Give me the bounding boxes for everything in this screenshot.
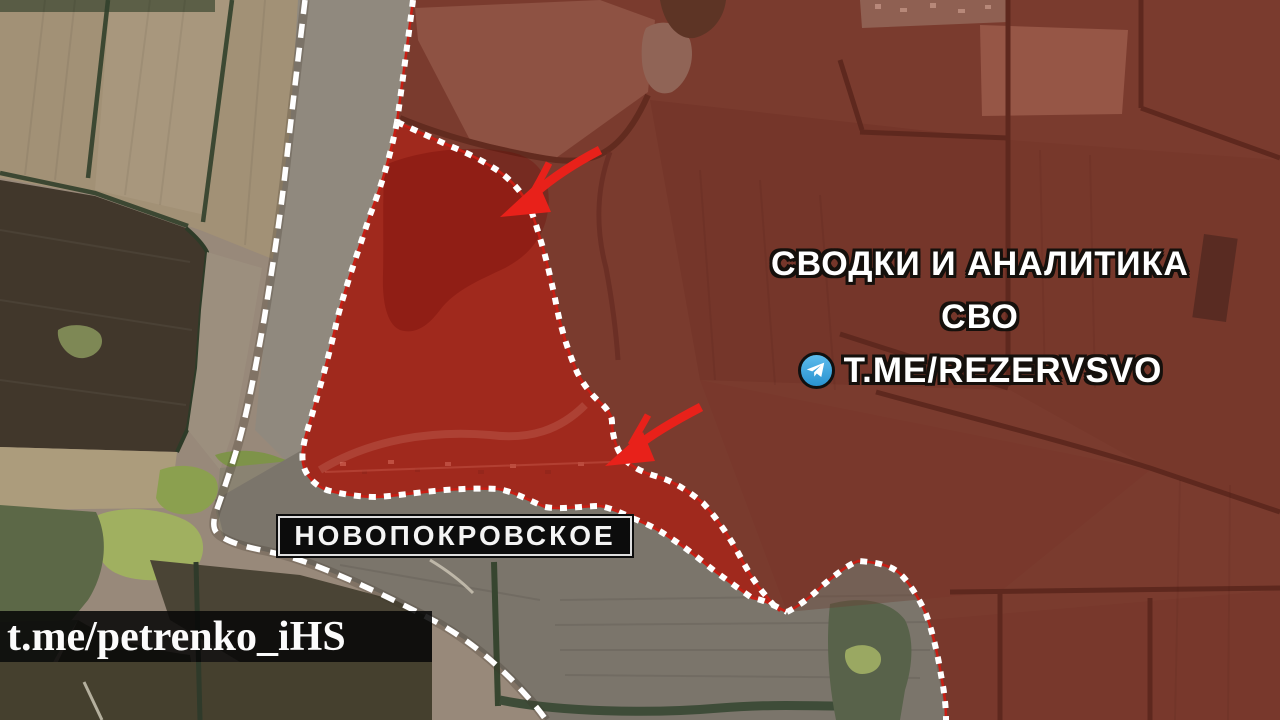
village-label: НОВОПОКРОВСКОЕ: [278, 516, 632, 556]
war-map-screenshot: СВОДКИ И АНАЛИТИКА СВО T.ME/REZERVSVO НО…: [0, 0, 1280, 720]
watermark: t.me/petrenko_iHS: [0, 611, 432, 662]
